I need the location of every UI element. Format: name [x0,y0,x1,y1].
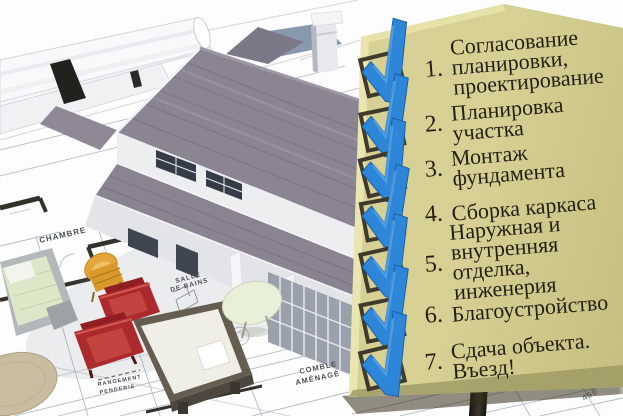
poster: CHAMBRE SALLE DE BAINS COMBLE AMÉNAGÉ RA… [0,0,623,416]
item-text: Благоустройство [451,292,609,325]
item-text: Сдача объекта. Въезд! [450,330,592,381]
checklist-item-7: 7. Сдача объекта. Въезд! [360,330,592,389]
item-text: Планировка участка [450,94,566,143]
item-text: Монтаж фундамента [450,139,565,188]
item-text: Согласование планировки, проектирование [449,26,604,98]
item-line: Благоустройство [451,292,609,325]
checklist: 1. Согласование планировки, проектирован… [0,0,623,416]
checkbox [358,342,407,391]
